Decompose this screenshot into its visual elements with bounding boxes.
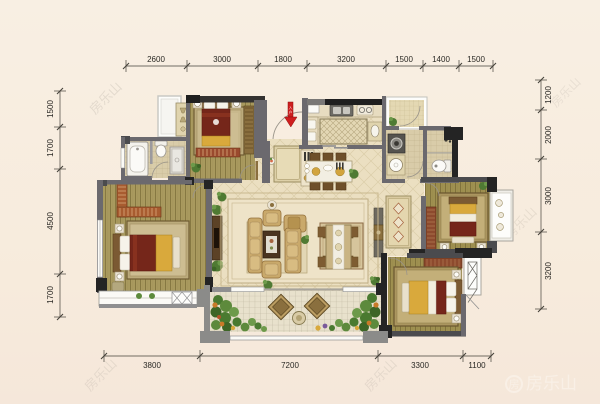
svg-text:1500: 1500 <box>46 100 55 118</box>
svg-text:1100: 1100 <box>468 361 486 370</box>
svg-text:1500: 1500 <box>395 55 413 64</box>
svg-text:3200: 3200 <box>544 262 553 280</box>
svg-text:3300: 3300 <box>411 361 429 370</box>
svg-text:1800: 1800 <box>274 55 292 64</box>
svg-text:户: 户 <box>289 109 293 115</box>
svg-text:房: 房 <box>509 378 520 391</box>
svg-text:1400: 1400 <box>432 55 450 64</box>
svg-text:1500: 1500 <box>467 55 485 64</box>
svg-text:3000: 3000 <box>544 187 553 205</box>
svg-text:7200: 7200 <box>281 361 299 370</box>
svg-text:1700: 1700 <box>46 139 55 157</box>
svg-text:4500: 4500 <box>46 212 55 230</box>
svg-text:2600: 2600 <box>147 55 165 64</box>
svg-text:3000: 3000 <box>213 55 231 64</box>
svg-text:1200: 1200 <box>544 86 553 104</box>
svg-text:3200: 3200 <box>337 55 355 64</box>
svg-text:房乐山: 房乐山 <box>526 374 577 393</box>
svg-text:3800: 3800 <box>143 361 161 370</box>
svg-text:2000: 2000 <box>544 126 553 144</box>
svg-text:1700: 1700 <box>46 286 55 304</box>
